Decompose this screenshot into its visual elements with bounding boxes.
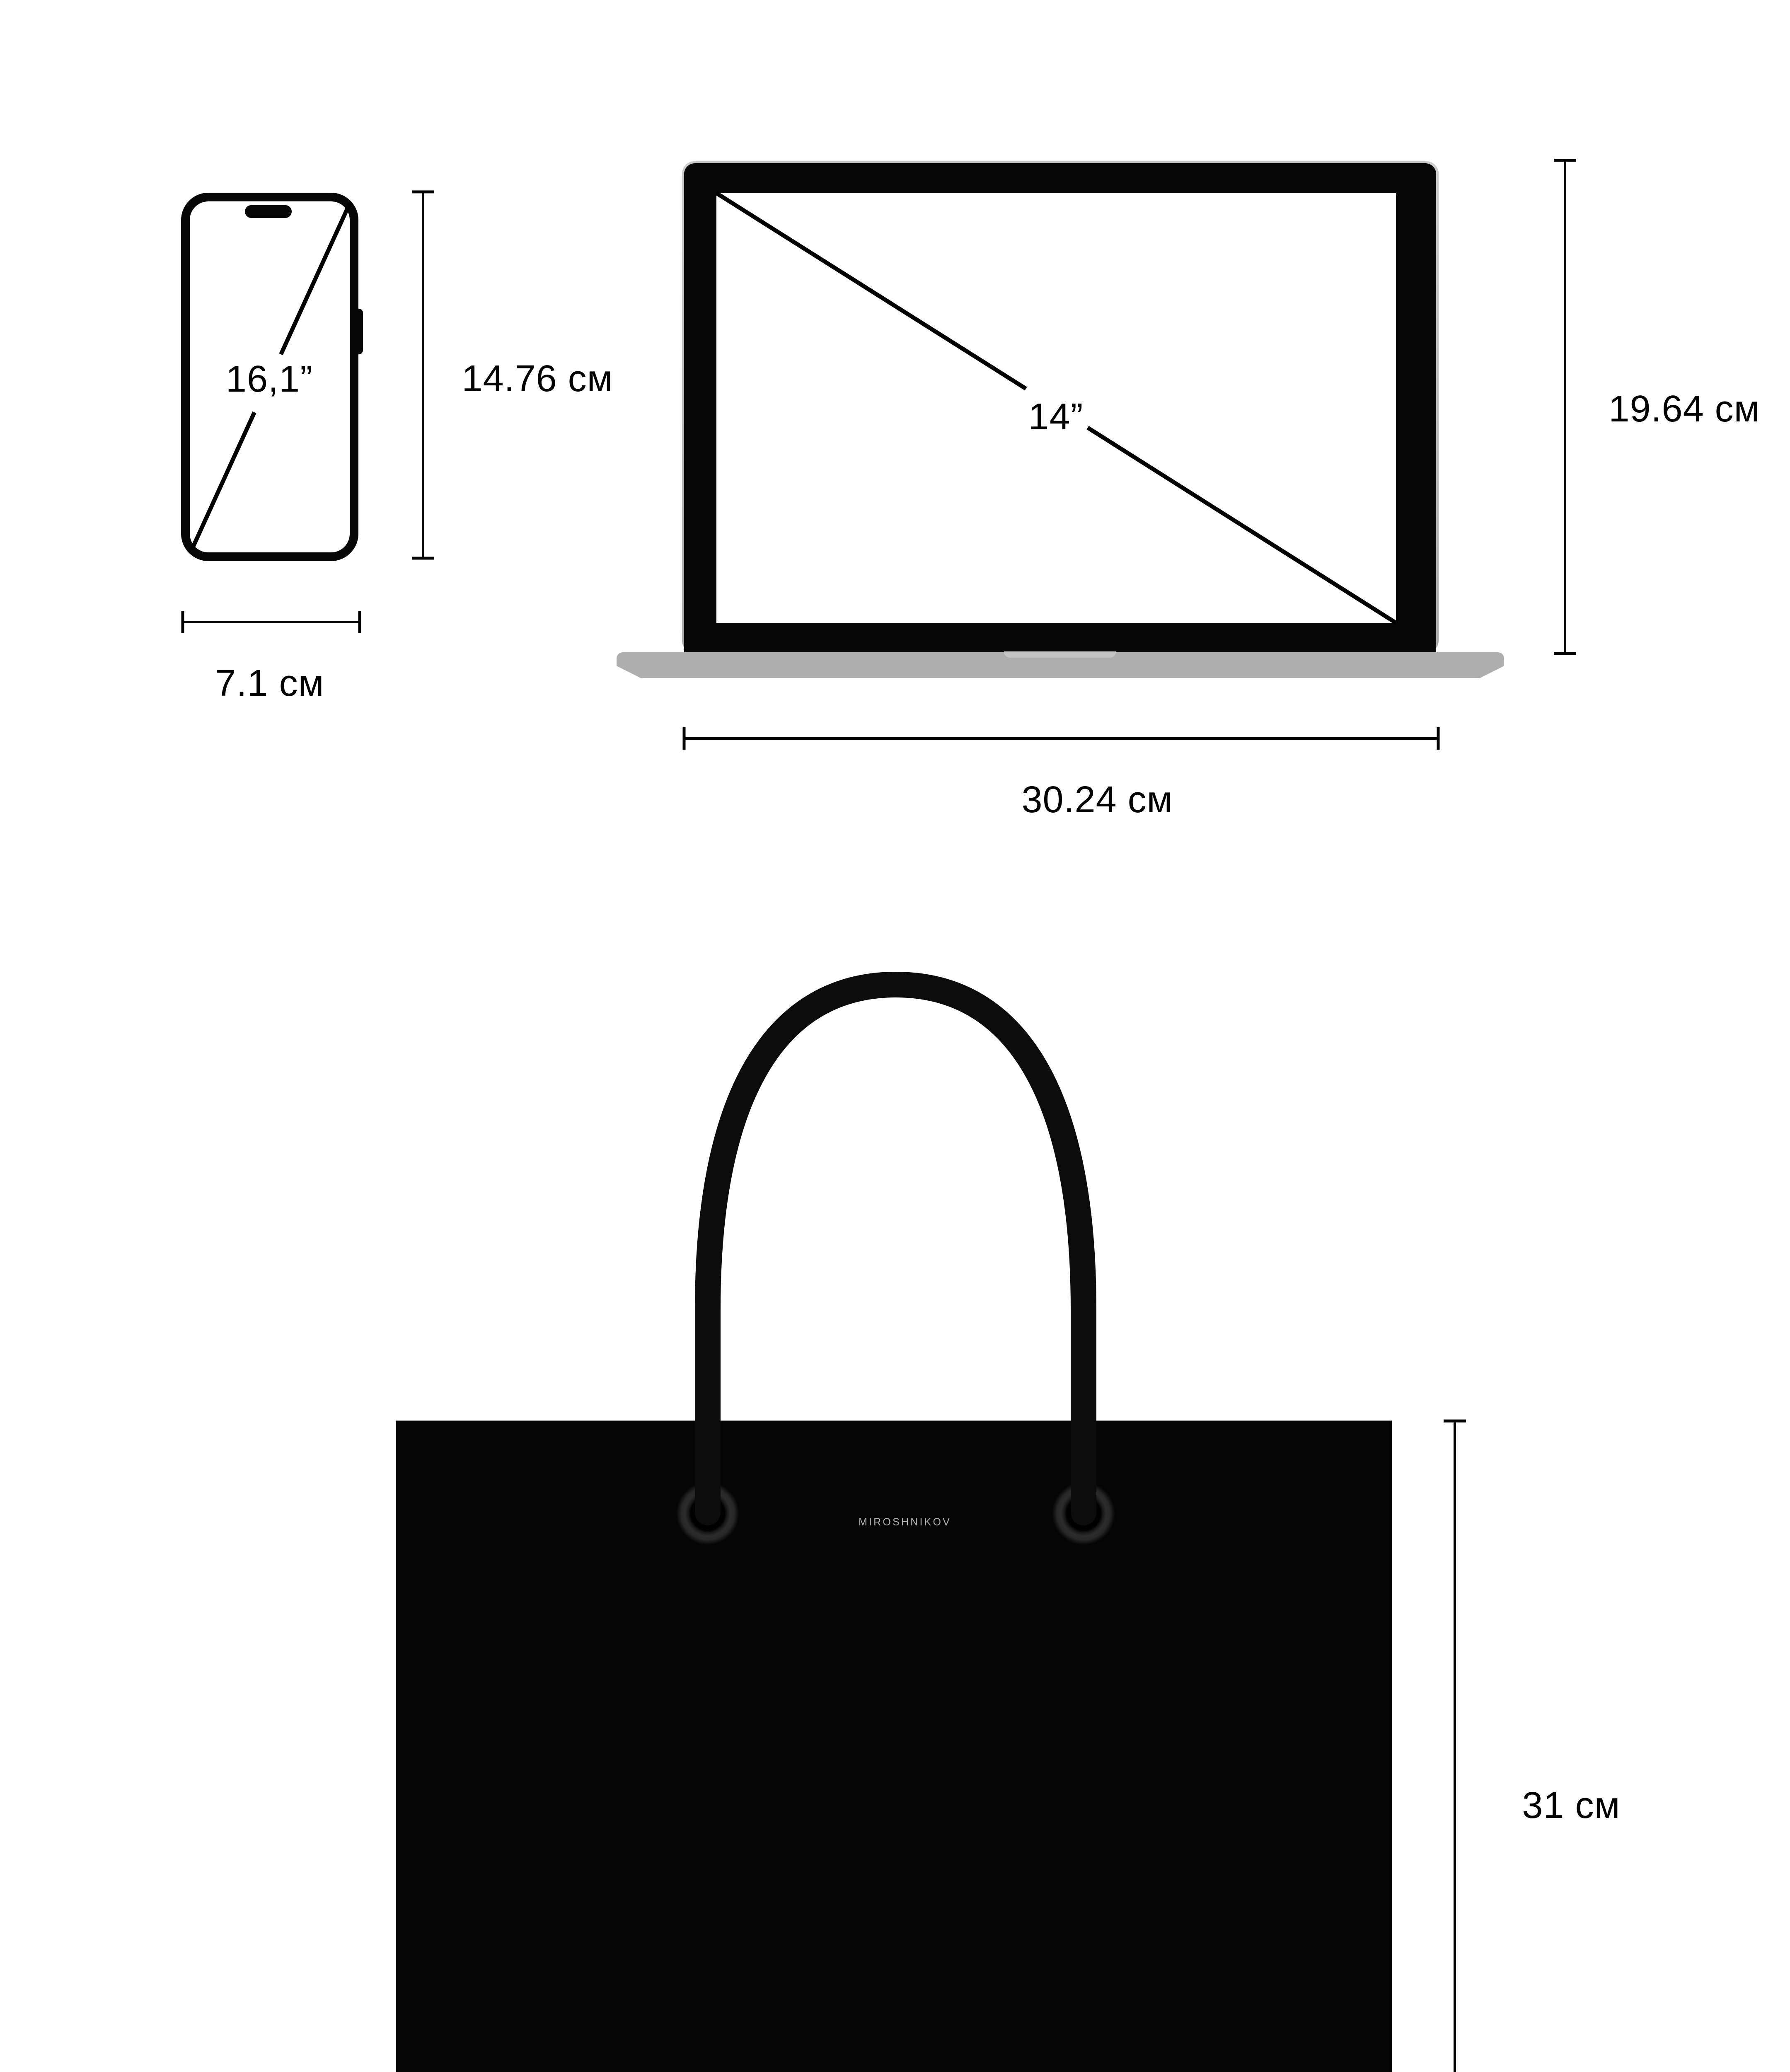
svg-text:19.64 см: 19.64 см bbox=[1609, 388, 1760, 430]
svg-text:30.24 см: 30.24 см bbox=[1021, 779, 1173, 821]
svg-text:7.1 см: 7.1 см bbox=[215, 663, 324, 704]
svg-text:14.76 см: 14.76 см bbox=[462, 358, 613, 399]
svg-text:31 см: 31 см bbox=[1522, 1785, 1621, 1826]
svg-text:14”: 14” bbox=[1028, 396, 1083, 438]
svg-text:16,1”: 16,1” bbox=[226, 358, 313, 400]
svg-text:MIROSHNIKOV: MIROSHNIKOV bbox=[859, 1516, 951, 1528]
